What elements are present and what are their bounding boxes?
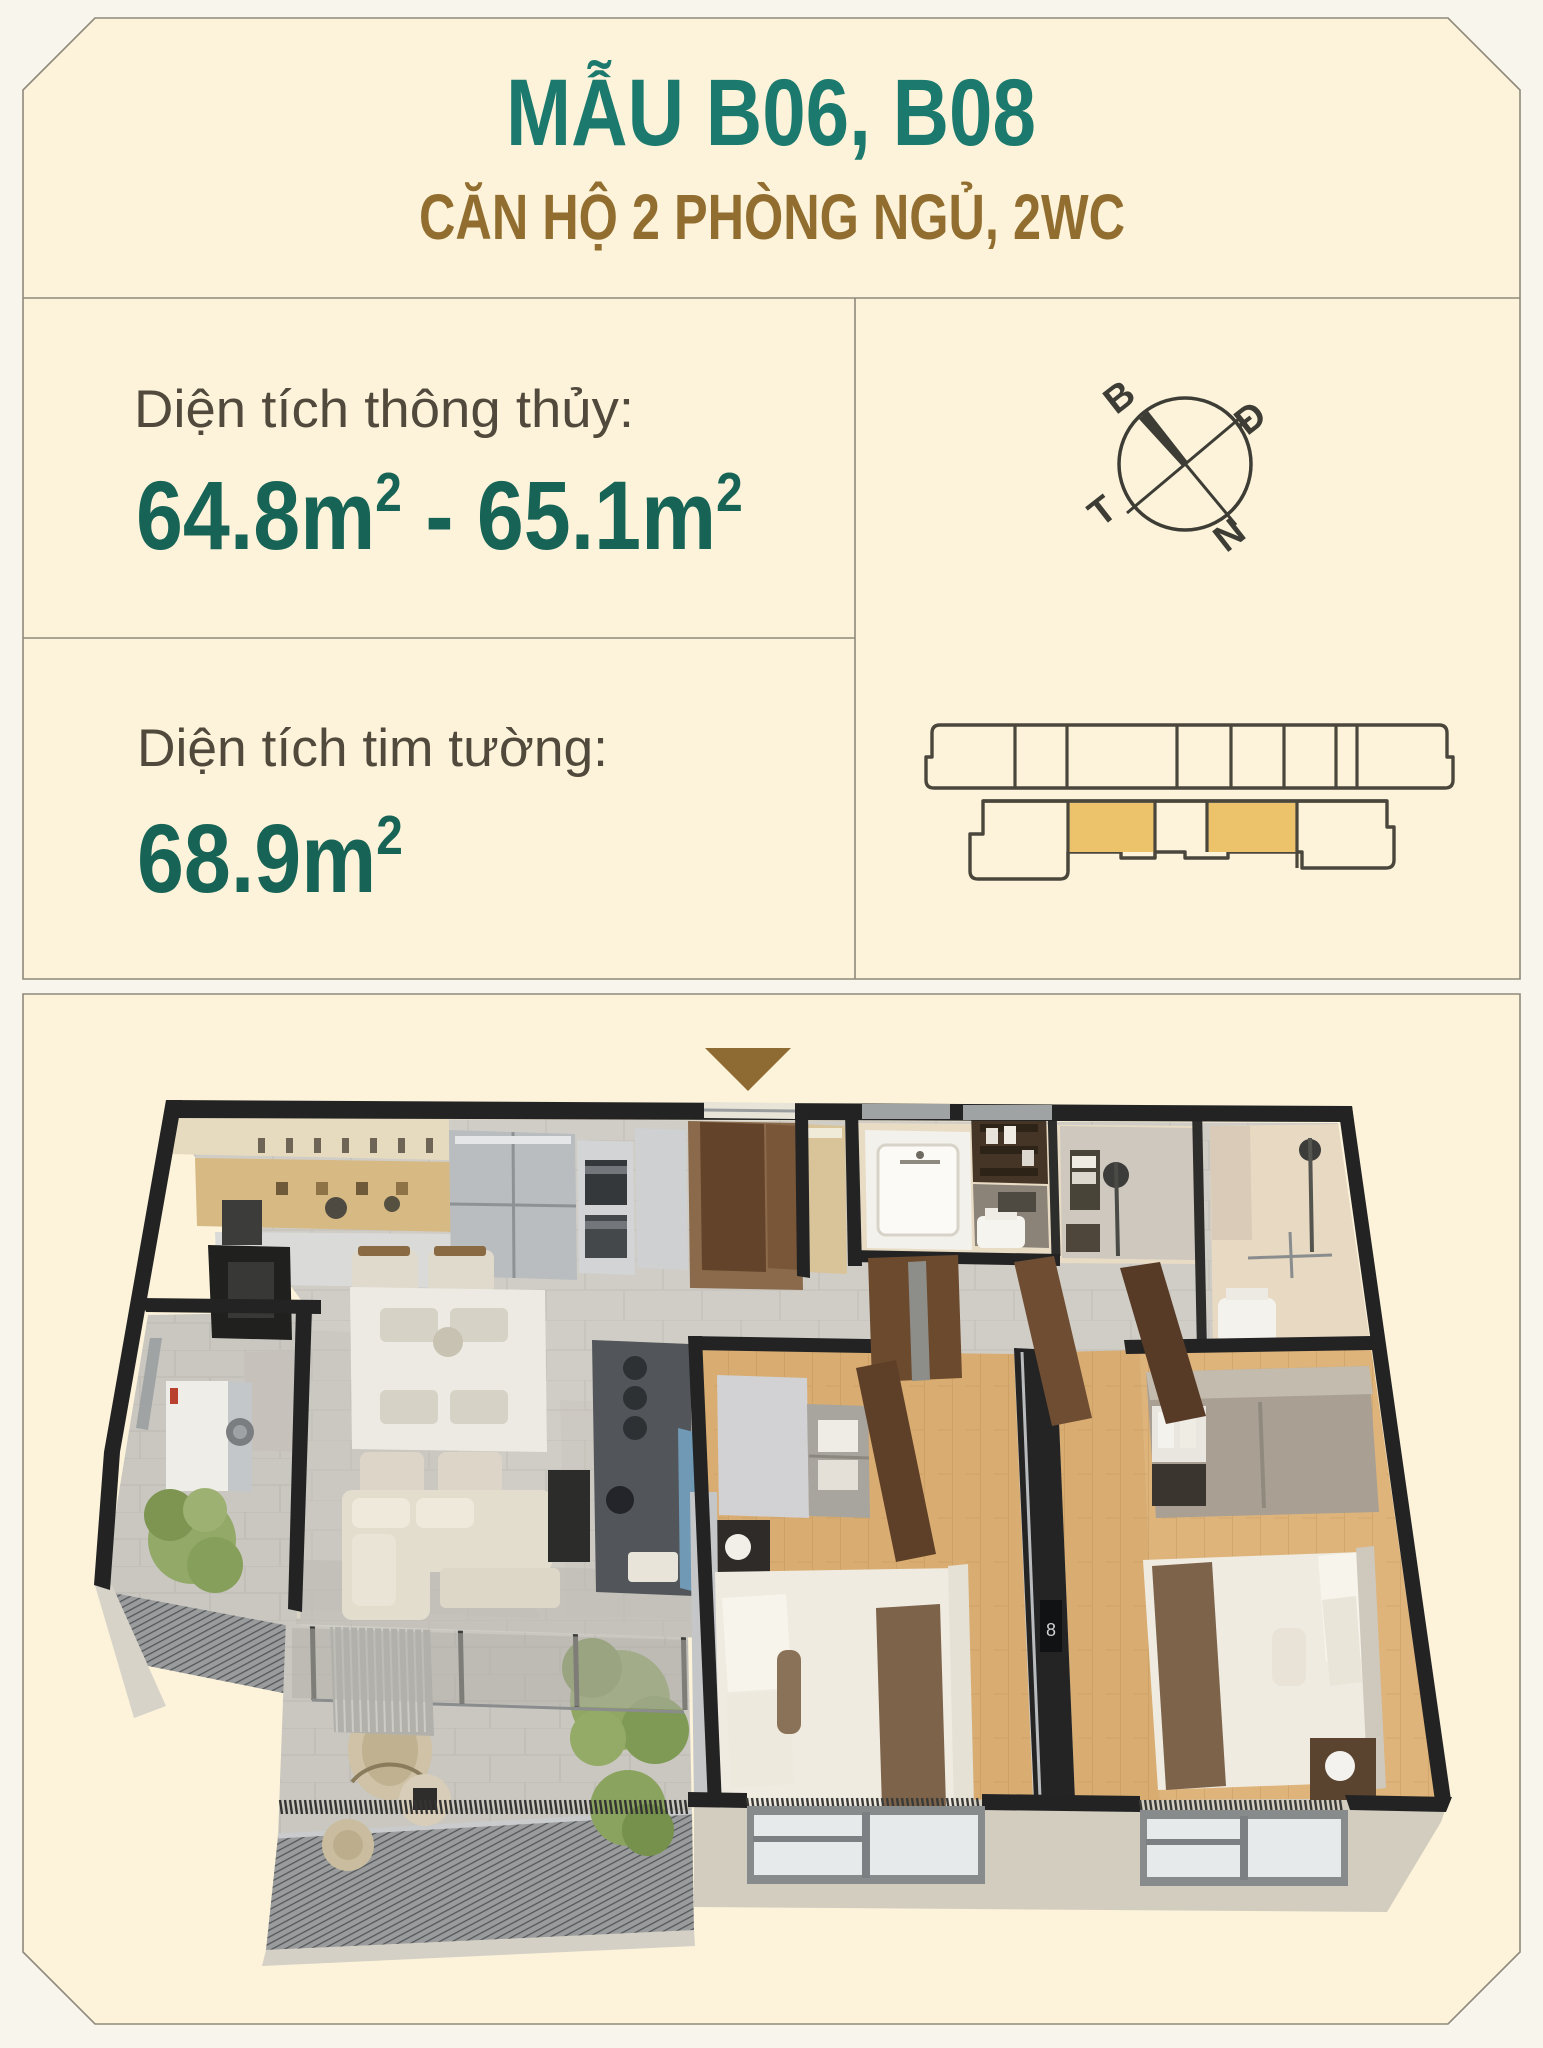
svg-text:Diện tích thông thủy:: Diện tích thông thủy: — [134, 380, 634, 439]
svg-text:68.9m2: 68.9m2 — [137, 804, 403, 913]
svg-text:Diện tích tim tường:: Diện tích tim tường: — [137, 719, 608, 778]
svg-text:8: 8 — [1046, 1620, 1056, 1640]
svg-text:64.8m2 - 65.1m2: 64.8m2 - 65.1m2 — [136, 461, 743, 570]
svg-text:MẪU B06, B08: MẪU B06, B08 — [506, 60, 1036, 166]
svg-text:CĂN HỘ 2 PHÒNG NGỦ, 2WC: CĂN HỘ 2 PHÒNG NGỦ, 2WC — [419, 180, 1125, 253]
